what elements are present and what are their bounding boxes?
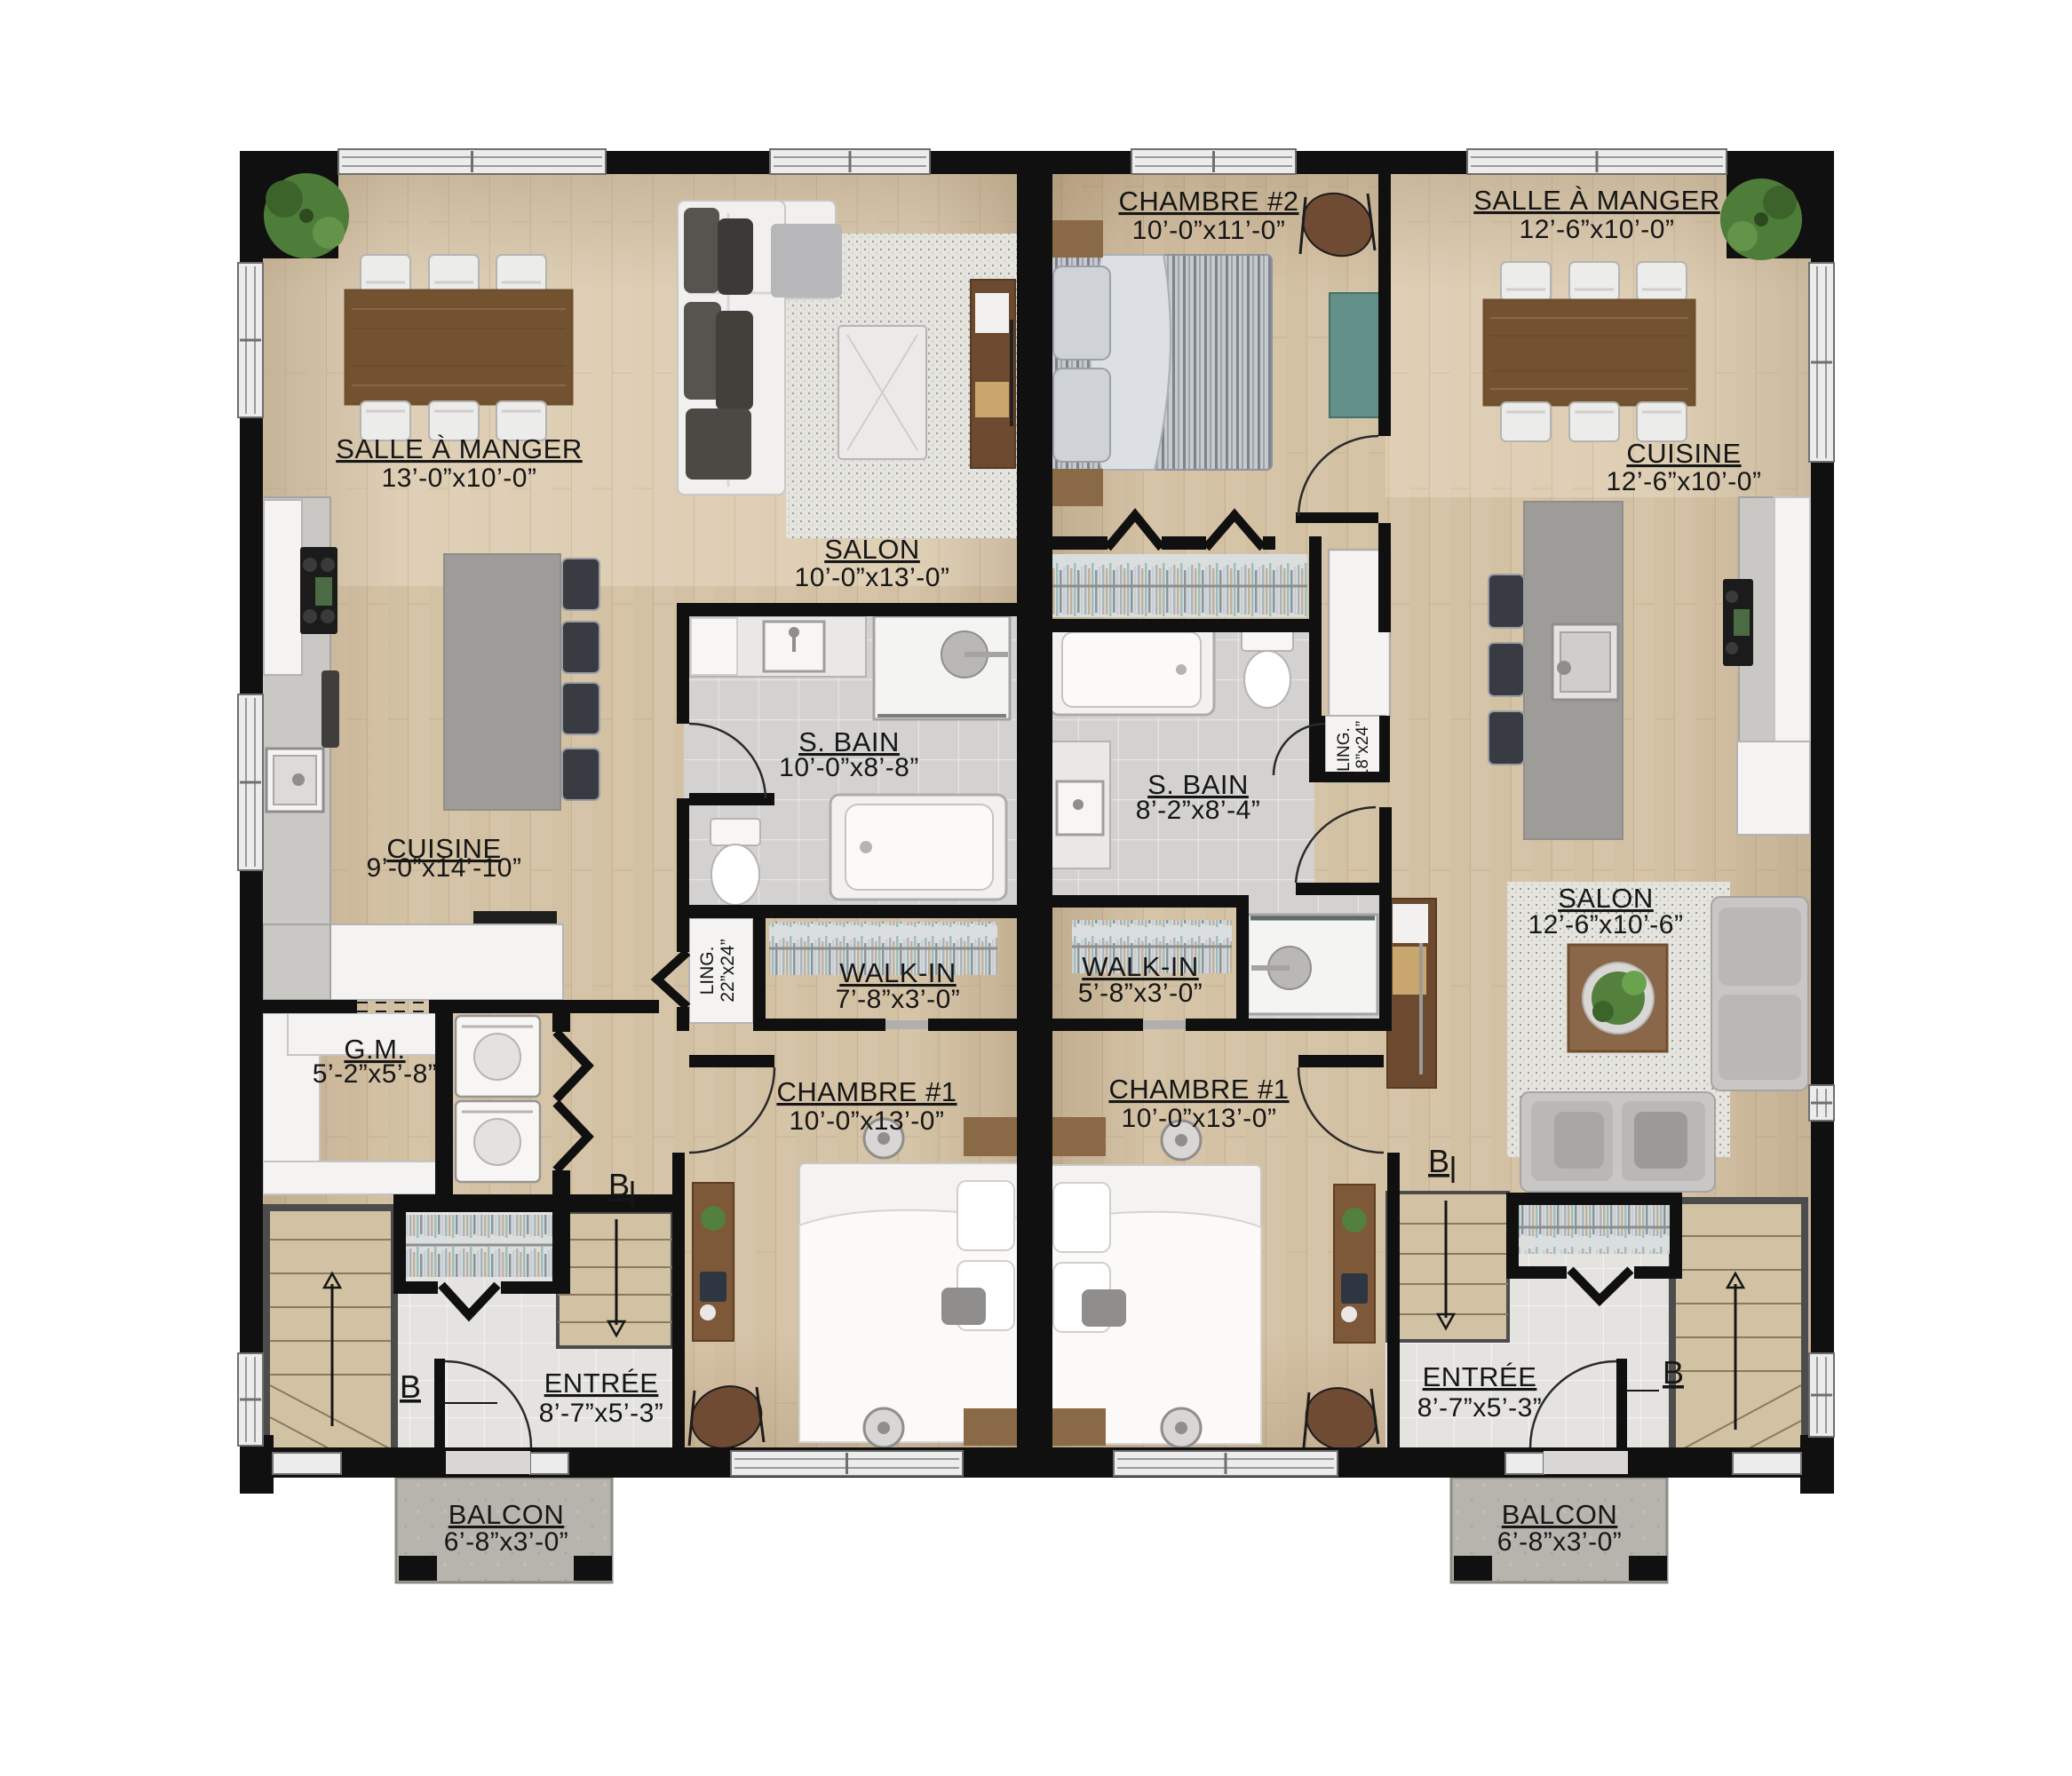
svg-text:WALK-IN: WALK-IN — [839, 957, 957, 988]
svg-text:12’-6”x10’-6”: 12’-6”x10’-6” — [1528, 910, 1684, 940]
svg-text:12’-6”x10’-0”: 12’-6”x10’-0” — [1520, 215, 1675, 244]
svg-text:10’-0”x13’-0”: 10’-0”x13’-0” — [790, 1106, 945, 1136]
svg-text:13’-0”x10’-0”: 13’-0”x10’-0” — [382, 464, 537, 493]
svg-text:12’-6”x10’-0”: 12’-6”x10’-0” — [1607, 467, 1762, 496]
svg-text:SALLE À MANGER: SALLE À MANGER — [336, 433, 582, 464]
svg-text:B: B — [608, 1167, 630, 1203]
svg-text:5’-8”x3’-0”: 5’-8”x3’-0” — [1078, 979, 1203, 1008]
svg-text:10’-0”x13’-0”: 10’-0”x13’-0” — [795, 563, 950, 592]
svg-text:CUISINE: CUISINE — [1626, 438, 1741, 469]
svg-text:B: B — [400, 1368, 421, 1405]
svg-text:B: B — [1428, 1143, 1449, 1179]
svg-text:8’-7”x5’-3”: 8’-7”x5’-3” — [1417, 1393, 1543, 1423]
svg-text:LING.: LING. — [697, 947, 718, 995]
svg-text:B: B — [1663, 1354, 1684, 1391]
svg-text:10’-0”x8’-8”: 10’-0”x8’-8” — [779, 753, 919, 782]
svg-text:WALK-IN: WALK-IN — [1082, 951, 1199, 982]
svg-text:6’-8”x3’-0”: 6’-8”x3’-0” — [1497, 1527, 1623, 1557]
svg-text:CHAMBRE #2: CHAMBRE #2 — [1118, 186, 1298, 217]
svg-text:CHAMBRE #1: CHAMBRE #1 — [1108, 1074, 1289, 1105]
svg-text:SALON: SALON — [824, 534, 920, 565]
svg-text:SALLE À MANGER: SALLE À MANGER — [1473, 185, 1719, 216]
svg-text:22”x24”: 22”x24” — [718, 939, 738, 1002]
svg-text:ENTRÉE: ENTRÉE — [1423, 1361, 1537, 1392]
svg-text:SALON: SALON — [1558, 883, 1654, 914]
svg-text:8’-7”x5’-3”: 8’-7”x5’-3” — [539, 1399, 664, 1428]
svg-text:CHAMBRE #1: CHAMBRE #1 — [776, 1076, 957, 1107]
svg-text:6’-8”x3’-0”: 6’-8”x3’-0” — [444, 1527, 569, 1557]
svg-text:BALCON: BALCON — [449, 1499, 564, 1530]
svg-text:ENTRÉE: ENTRÉE — [544, 1368, 659, 1399]
svg-text:8’-2”x8’-4”: 8’-2”x8’-4” — [1136, 796, 1261, 825]
svg-text:LING.: LING. — [1335, 727, 1354, 772]
svg-text:5’-2”x5’-8”: 5’-2”x5’-8” — [313, 1059, 438, 1089]
svg-text:9’-0”x14’-10”: 9’-0”x14’-10” — [367, 853, 522, 883]
svg-text:7’-8”x3’-0”: 7’-8”x3’-0” — [836, 985, 961, 1014]
svg-text:10’-0”x13’-0”: 10’-0”x13’-0” — [1122, 1104, 1277, 1133]
svg-text:BALCON: BALCON — [1502, 1499, 1617, 1530]
svg-text:10’-0”x11’-0”: 10’-0”x11’-0” — [1132, 216, 1286, 245]
svg-text:18”x24”: 18”x24” — [1354, 721, 1372, 778]
